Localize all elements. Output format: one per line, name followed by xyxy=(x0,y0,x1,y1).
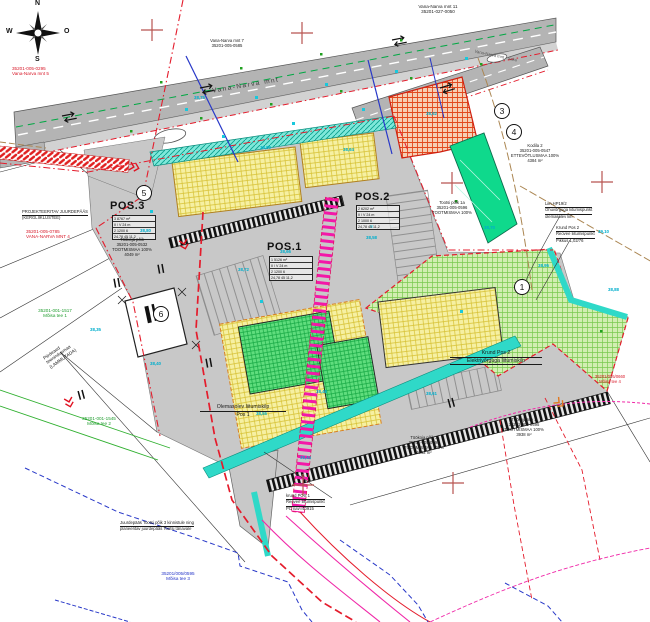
spot-elevation: 38,52 xyxy=(426,111,437,116)
annotation-vana-narva-5: 35201-005-0295Vana-Narva mnt 5 xyxy=(12,66,49,77)
parcel-marker-4: 4 xyxy=(506,124,522,140)
spot-elevation: 38,75 xyxy=(194,95,205,100)
spot-elevation: 38,66 xyxy=(280,249,291,254)
annotation-moisa-tee-2: 35201-001-1545Mõisa tee 2 xyxy=(74,416,124,427)
spot-elevation: 38,58 xyxy=(366,235,377,240)
annotation-vana-narva-4: 35201-005-0785VANA-NARVA MNT 4 xyxy=(26,229,70,240)
spot-elevation: 38,88 xyxy=(608,287,619,292)
spot-elevation: 38,80 xyxy=(140,228,151,233)
spot-elevation: 38,44 xyxy=(300,455,311,460)
annotation-access-tootsi: Juurdepääs Tootsi põik 3 kinnistule ning… xyxy=(120,521,194,532)
plan-drawing xyxy=(0,0,650,622)
pos2-title: POS.2 xyxy=(355,191,390,203)
spot-elevation: 38,72 xyxy=(238,267,249,272)
annotation-krund-pos2-electric: Krund Pos 2Elektrivõrguga liitumiskilp xyxy=(450,350,542,365)
compass-south-label: S xyxy=(35,56,40,63)
annotation-moisa-tee-1: 35201-001-1517Mõisa tee 1 xyxy=(30,308,80,319)
compass-west-label: W xyxy=(6,28,13,35)
annotation-sewage-connection-pos2: Krund Pos 2Reovee liitumispunkt Pikkus 1… xyxy=(556,226,595,244)
parcel-marker-6: 6 xyxy=(153,306,169,322)
annotation-overhead-line-connection: Liin HP19/2Õhuvõrguga liitumispunkt olem… xyxy=(545,202,592,220)
spot-elevation: 39,10 xyxy=(598,229,609,234)
spot-elevation: 38,35 xyxy=(90,327,101,332)
annotation-krund-pos1-sewage: krund POS 1Reovee liitumispunkt PC nav=4… xyxy=(286,494,325,512)
table-row: 24,78 45 11,2 xyxy=(270,275,312,280)
pos3-title: POS.3 xyxy=(110,200,145,212)
spot-elevation: 38,61 xyxy=(426,391,437,396)
compass-east-label: O xyxy=(64,28,69,35)
spot-elevation: 38,90 xyxy=(260,145,271,150)
spot-elevation: 38,48 xyxy=(316,389,327,394)
compass-rose xyxy=(16,11,60,55)
annotation-kodila-2: Kodila 235201-005-0547 ETTEVÕTLUSMAA 100… xyxy=(496,144,574,164)
parcel-marker-5: 5 xyxy=(136,185,152,201)
annotation-tookoja-poik-3: Töökoja põik 335201-005-0594 TOOTMISMAA … xyxy=(388,436,460,456)
spot-elevation: 38,70 xyxy=(484,225,495,230)
spot-elevation: 38,95 xyxy=(538,263,549,268)
annotation-planned-access: PROJEKTEERITAV JUURDEPÄÄS(KERGLIIKLUSTEE… xyxy=(22,210,88,221)
compass-north-label: N xyxy=(35,0,40,7)
annotation-moisa-tee-4: 35201/005/0660Mõisa tee 4 xyxy=(582,375,638,385)
spot-elevation: 38,64 xyxy=(343,147,354,152)
spot-elevation: 38,55 xyxy=(256,411,267,416)
table-row: 24,78 45 11,2 xyxy=(357,224,399,229)
pos2-table: 2 6202 m²II / V 24 m2 1000 624,78 45 11,… xyxy=(356,205,400,230)
annotation-vana-narva-7: Vana-Narva mnt 735201-005-0585 xyxy=(200,39,254,49)
spot-elevation: 38,40 xyxy=(150,361,161,366)
annotation-existing-connection-box: Olemasolev liitumiskilpPos 1 xyxy=(200,404,286,418)
parcel-marker-1: 1 xyxy=(514,279,530,295)
annotation-tookoja-tee-3: Töökoja tee 335201-005-0595 TOOTMISMAA 1… xyxy=(488,418,560,438)
annotation-moisa-tee-3: 35201/005/0595Mõisa tee 3 xyxy=(150,571,206,582)
pos1-table: 1 5126 m²II / V 24 m2 1200 624,78 45 11,… xyxy=(269,256,313,281)
annotation-tootsi-poik-1a: Tootsi põik 1a35201-005-0596 TOOTMISMAA … xyxy=(424,201,480,216)
annotation-tookoja-poik: Töökoja põik35201-005-0532 TOOTMISMAA 10… xyxy=(100,238,164,258)
annotation-vana-narva-11: Vana-Narva mnt 1135201-027-0050 xyxy=(398,4,478,15)
parcel-marker-3: 3 xyxy=(494,103,510,119)
site-plan-canvas: N O S W 1 3 4 5 6 POS.3 3 8767 m²II / V … xyxy=(0,0,650,622)
